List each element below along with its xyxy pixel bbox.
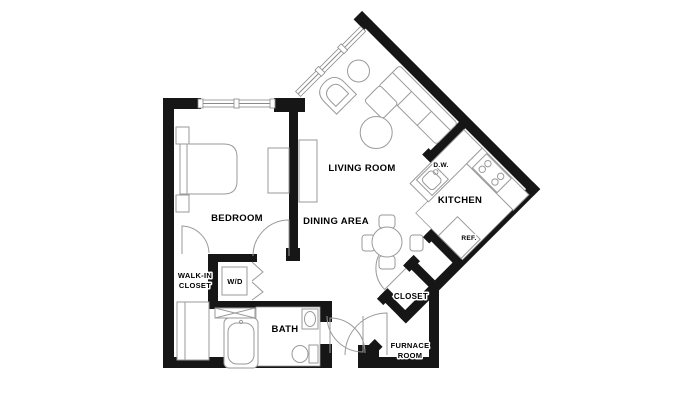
label-furnace-room-2: ROOM	[398, 351, 423, 360]
nightstand-bottom	[176, 195, 189, 212]
dresser	[268, 148, 289, 193]
label-walk-in-closet-2: CLOSET	[179, 281, 211, 290]
label-walk-in-closet-1: WALK-IN	[178, 271, 212, 280]
bathtub	[224, 318, 258, 368]
label-living-room: LIVING ROOM	[328, 163, 395, 174]
label-kitchen: KITCHEN	[438, 195, 482, 206]
wall-bedroom-dining-endcap	[286, 248, 300, 261]
label-closet: CLOSET	[394, 292, 428, 301]
label-furnace-room-1: FURNACE	[391, 341, 430, 350]
closet-shelving	[177, 302, 209, 360]
label-dishwasher: D.W.	[433, 162, 448, 169]
dining-chair-top	[379, 215, 395, 228]
dining-chair-bottom	[379, 256, 395, 269]
bath-sink	[302, 309, 318, 329]
toilet	[292, 345, 318, 363]
wd-bifold-door-top	[252, 262, 263, 281]
bedroom-window	[198, 99, 275, 108]
wd-bifold-door-bottom	[252, 282, 263, 300]
wall-left	[163, 98, 174, 368]
bedroom-door	[253, 220, 289, 256]
walk-in-closet-door	[182, 226, 209, 254]
coffee-table	[354, 110, 399, 155]
label-washer-dryer: W/D	[227, 277, 243, 286]
wall-bedroom-dining	[289, 106, 298, 256]
side-table	[343, 55, 374, 86]
bath-vanity	[215, 308, 255, 318]
label-refrigerator: REF.	[461, 235, 476, 242]
dining-chair-right	[410, 235, 423, 251]
label-bath: BATH	[272, 324, 299, 335]
label-bedroom: BEDROOM	[211, 213, 263, 224]
buffet	[299, 140, 317, 202]
nightstand-top	[176, 127, 189, 144]
bed	[180, 144, 237, 194]
dining-table	[372, 227, 402, 257]
floor-plan: LIVING ROOM DINING AREA BEDROOM KITCHEN …	[0, 0, 700, 400]
label-dining-area: DINING AREA	[303, 216, 369, 227]
floor-plan-canvas: LIVING ROOM DINING AREA BEDROOM KITCHEN …	[0, 0, 700, 400]
wall-top-left	[163, 98, 201, 109]
